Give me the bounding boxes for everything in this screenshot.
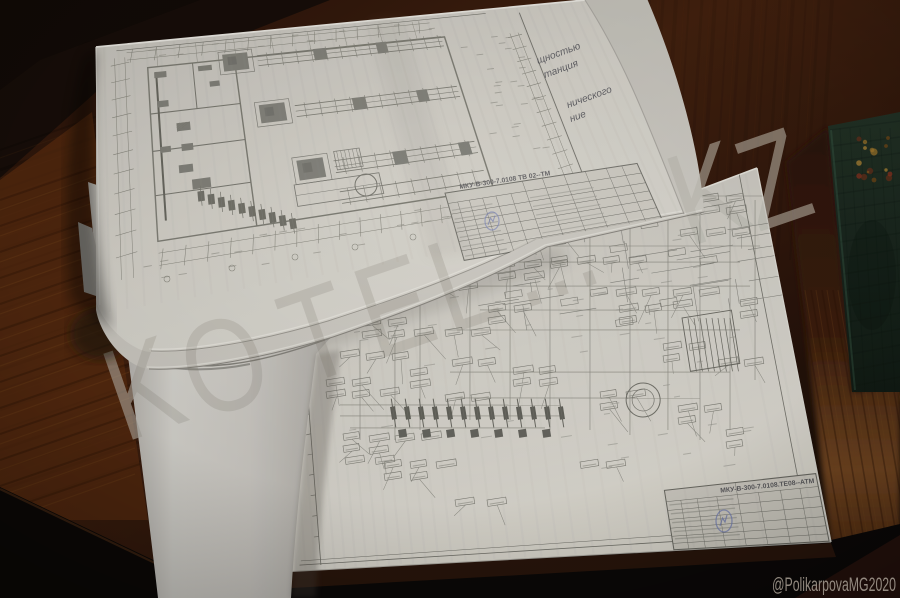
svg-text:@PolikarpovaMG2020: @PolikarpovaMG2020 xyxy=(772,575,896,596)
